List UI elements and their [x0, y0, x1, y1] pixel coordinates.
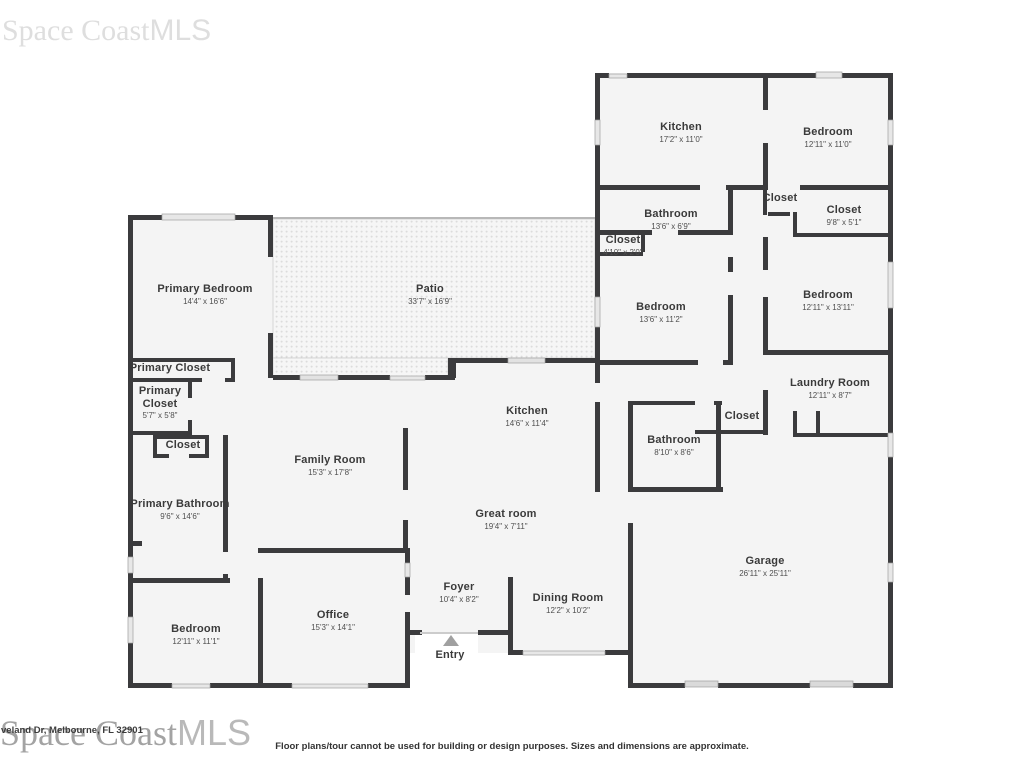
room-name: Primary Bathroom	[130, 498, 229, 511]
room-dimensions: 12'11" x 11'0"	[803, 140, 853, 149]
room-label: Bedroom12'11" x 11'1"	[171, 623, 221, 646]
room-label: Primary Bedroom14'4" x 16'6"	[157, 283, 252, 306]
room-name: Garage	[739, 555, 791, 568]
room-name: Bedroom	[803, 126, 853, 139]
room-dimensions: 9'6" x 14'6"	[130, 512, 229, 521]
room-dimensions: 14'4" x 16'6"	[157, 297, 252, 306]
room-label: Dining Room12'2" x 10'2"	[533, 592, 604, 615]
room-label: Kitchen17'2" x 11'0"	[659, 121, 702, 144]
room-name: Primary Closet	[129, 385, 191, 410]
room-name: Bedroom	[636, 301, 686, 314]
room-name: Dining Room	[533, 592, 604, 605]
room-name: Kitchen	[659, 121, 702, 134]
entry-arrow-icon	[443, 635, 459, 646]
room-name: Bedroom	[171, 623, 221, 636]
room-dimensions: 14'6" x 11'4"	[505, 419, 548, 428]
room-label: Kitchen14'6" x 11'4"	[505, 405, 548, 428]
room-label: Office15'3" x 14'1"	[311, 609, 355, 632]
room-label: Entry	[435, 649, 464, 662]
room-label: Bedroom12'11" x 13'11"	[802, 289, 854, 312]
room-label: Primary Bathroom9'6" x 14'6"	[130, 498, 229, 521]
room-label: Family Room15'3" x 17'8"	[294, 454, 365, 477]
room-dimensions: 5'7" x 5'8"	[129, 411, 191, 420]
room-name: Patio	[408, 283, 452, 296]
room-name: Closet	[166, 439, 201, 452]
room-name: Family Room	[294, 454, 365, 467]
room-name: Kitchen	[505, 405, 548, 418]
room-dimensions: 12'11" x 8'7"	[790, 391, 870, 400]
room-dimensions: 4'10" x 2'0"	[603, 248, 642, 257]
room-name: Great room	[475, 508, 536, 521]
room-dimensions: 8'10" x 8'6"	[647, 448, 701, 457]
room-dimensions: 33'7" x 16'9"	[408, 297, 452, 306]
room-label: Great room19'4" x 7'11"	[475, 508, 536, 531]
room-name: Bathroom	[647, 434, 701, 447]
room-label: Primary Closet	[130, 362, 210, 375]
room-dimensions: 12'11" x 11'1"	[171, 637, 221, 646]
room-dimensions: 26'11" x 25'11"	[739, 569, 791, 578]
room-label: Primary Closet5'7" x 5'8"	[129, 385, 191, 420]
room-dimensions: 9'8" x 5'1"	[827, 218, 862, 227]
room-name: Primary Closet	[130, 362, 210, 375]
room-labels-layer: Kitchen17'2" x 11'0"Bedroom12'11" x 11'0…	[0, 0, 1024, 768]
floor-plan-page: Kitchen17'2" x 11'0"Bedroom12'11" x 11'0…	[0, 0, 1024, 768]
room-label: Patio33'7" x 16'9"	[408, 283, 452, 306]
room-label: Foyer10'4" x 8'2"	[439, 581, 478, 604]
room-dimensions: 15'3" x 14'1"	[311, 623, 355, 632]
room-dimensions: 17'2" x 11'0"	[659, 135, 702, 144]
room-label: Laundry Room12'11" x 8'7"	[790, 377, 870, 400]
room-label: Closet9'8" x 5'1"	[827, 204, 862, 227]
room-label: Bathroom8'10" x 8'6"	[647, 434, 701, 457]
room-dimensions: 12'2" x 10'2"	[533, 606, 604, 615]
room-label: Bedroom12'11" x 11'0"	[803, 126, 853, 149]
room-label: Closet4'10" x 2'0"	[603, 234, 642, 257]
room-dimensions: 10'4" x 8'2"	[439, 595, 478, 604]
room-name: Bedroom	[802, 289, 854, 302]
room-name: Closet	[603, 234, 642, 247]
room-label: Garage26'11" x 25'11"	[739, 555, 791, 578]
room-name: Primary Bedroom	[157, 283, 252, 296]
room-name: Foyer	[439, 581, 478, 594]
room-name: Laundry Room	[790, 377, 870, 390]
room-dimensions: 13'6" x 6'9"	[644, 222, 698, 231]
room-label: Bedroom13'6" x 11'2"	[636, 301, 686, 324]
address-fragment: veland Dr, Melbourne, FL 32901	[1, 725, 143, 736]
room-name: Entry	[435, 649, 464, 662]
room-name: Office	[311, 609, 355, 622]
room-name: Bathroom	[644, 208, 698, 221]
room-name: Closet	[827, 204, 862, 217]
room-label: Closet	[763, 192, 798, 205]
room-dimensions: 19'4" x 7'11"	[475, 522, 536, 531]
room-dimensions: 12'11" x 13'11"	[802, 303, 854, 312]
room-label: Closet	[725, 410, 760, 423]
room-name: Closet	[725, 410, 760, 423]
room-name: Closet	[763, 192, 798, 205]
room-label: Closet	[166, 439, 201, 452]
room-label: Bathroom13'6" x 6'9"	[644, 208, 698, 231]
disclaimer-text: Floor plans/tour cannot be used for buil…	[0, 741, 1024, 752]
room-dimensions: 15'3" x 17'8"	[294, 468, 365, 477]
room-dimensions: 13'6" x 11'2"	[636, 315, 686, 324]
